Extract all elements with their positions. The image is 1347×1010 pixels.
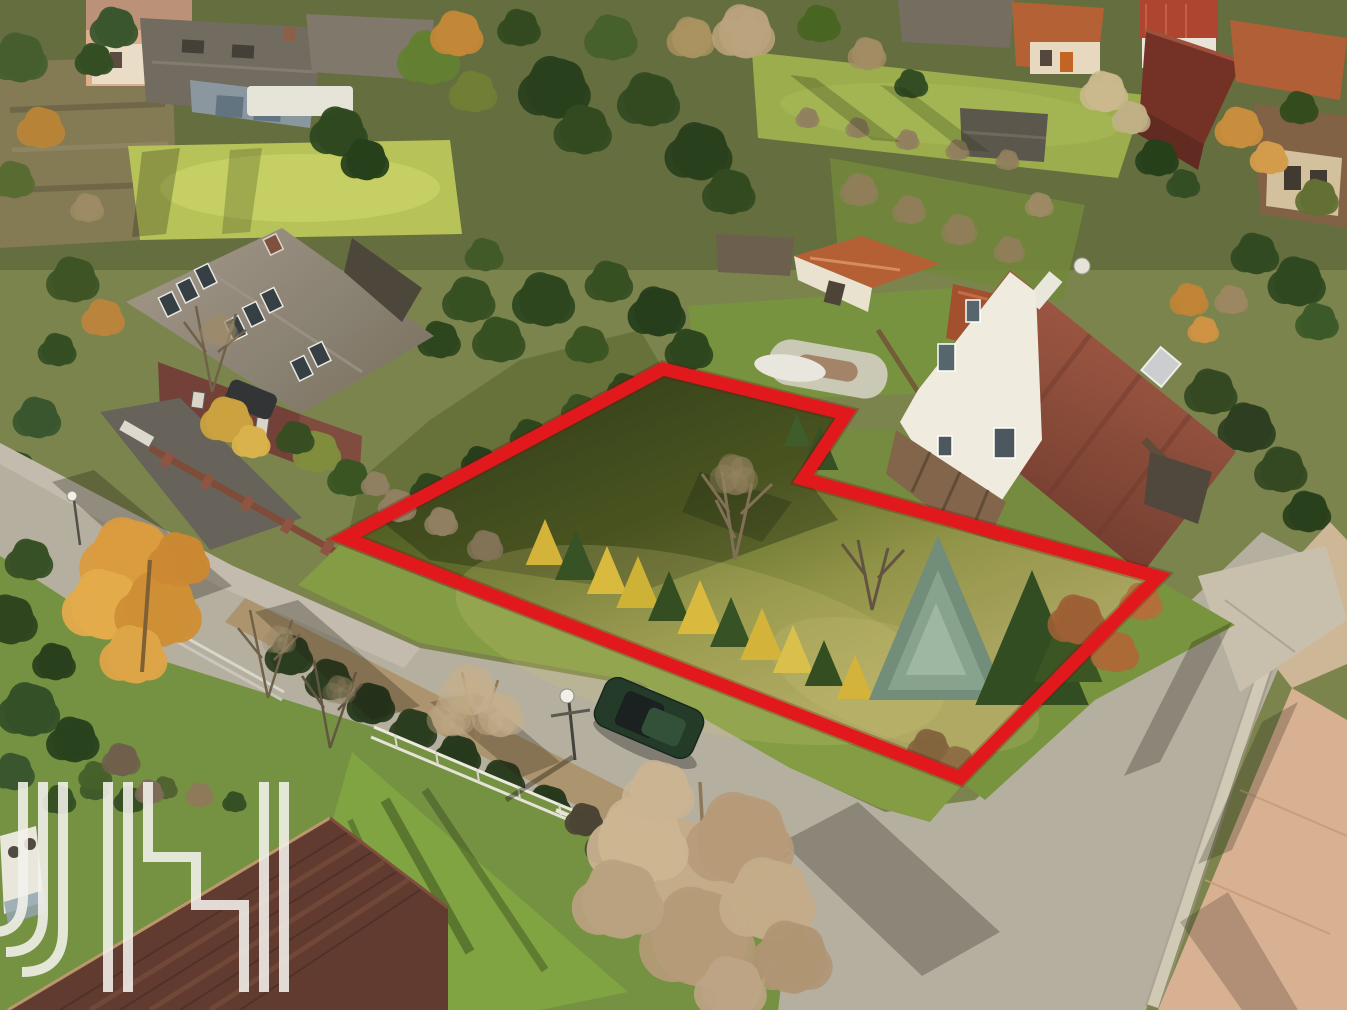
aerial-photo-canvas xyxy=(0,0,1347,1010)
aerial-photo xyxy=(0,0,1347,1010)
sunlight-wash xyxy=(0,0,1347,1010)
scene-items xyxy=(0,0,1347,1010)
